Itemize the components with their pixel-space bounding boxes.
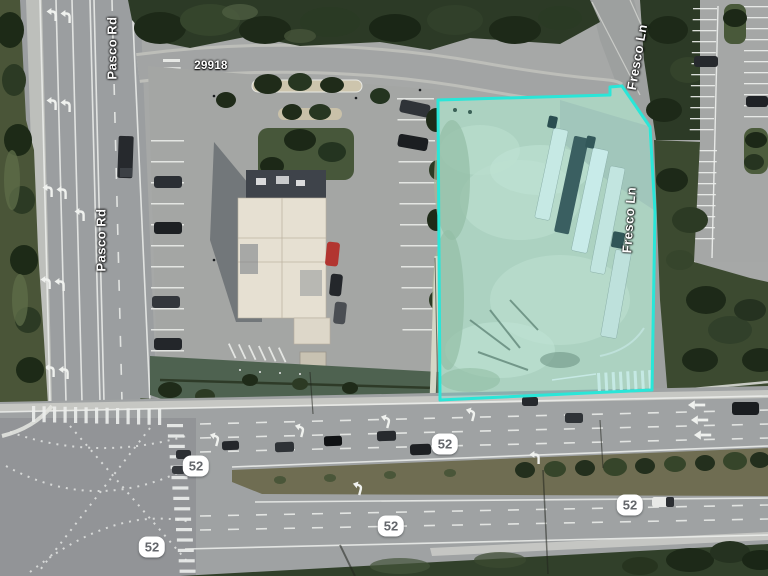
route-shield-52-c[interactable]: 52 (617, 495, 643, 516)
route-shield-number: 52 (438, 437, 452, 452)
highway-sr52 (0, 370, 768, 576)
route-shield-52-b[interactable]: 52 (183, 456, 209, 477)
route-shield-52-e[interactable]: 52 (139, 537, 165, 558)
route-shield-52-d[interactable]: 52 (378, 516, 404, 537)
road-label-pasco-rd-mid[interactable]: Pasco Rd (94, 208, 109, 271)
route-shield-number: 52 (384, 519, 398, 534)
red-car (325, 241, 340, 266)
truck-on-pasco (117, 136, 133, 178)
map-canvas[interactable]: Pasco Rd Pasco Rd Fresco Ln Fresco Ln 29… (0, 0, 768, 576)
route-shield-number: 52 (623, 498, 637, 513)
route-shield-number: 52 (189, 459, 203, 474)
restaurant-building (238, 170, 330, 344)
route-shield-number: 52 (145, 540, 159, 555)
address-label-29918[interactable]: 29918 (194, 60, 227, 72)
satellite-imagery (0, 0, 768, 576)
northeast-parking-lot (690, 0, 768, 277)
route-shield-52-a[interactable]: 52 (432, 434, 458, 455)
restaurant-lot (148, 66, 447, 402)
road-label-pasco-rd-north[interactable]: Pasco Rd (105, 16, 120, 79)
